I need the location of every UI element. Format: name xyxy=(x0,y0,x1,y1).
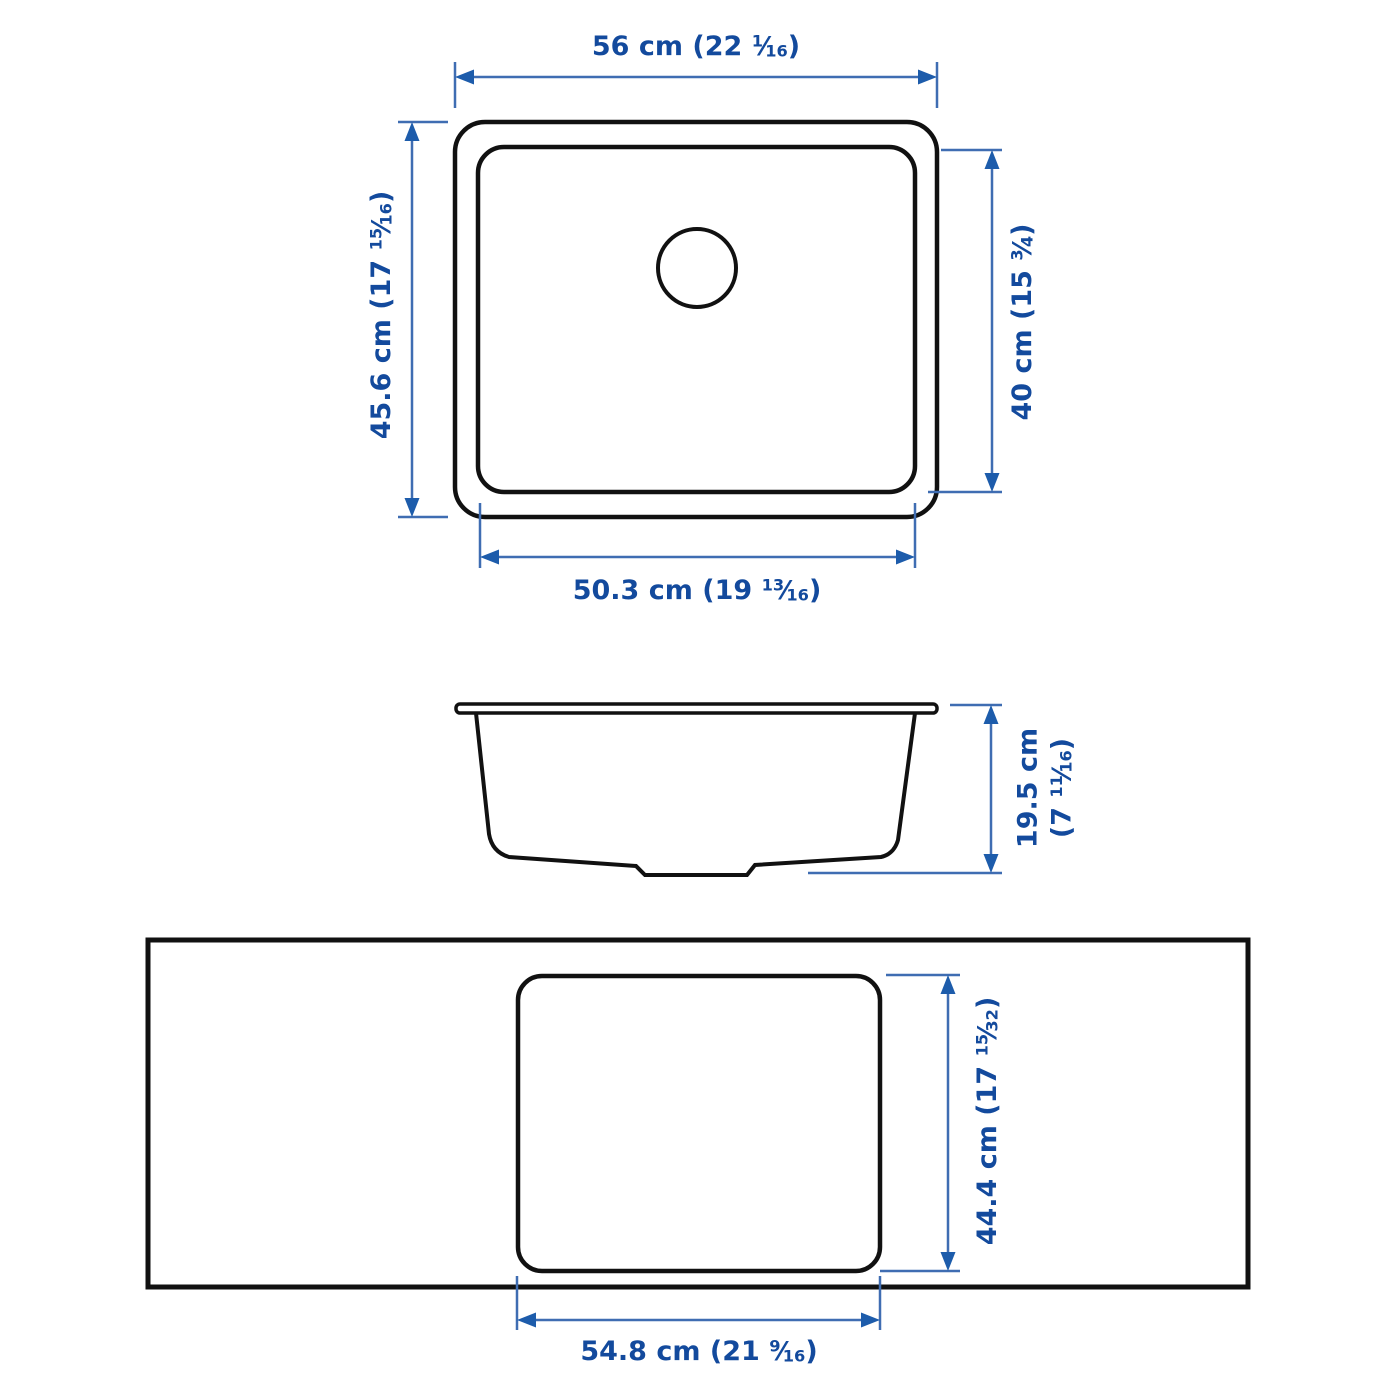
diagram-drawing xyxy=(0,0,1400,1400)
arrowhead-up xyxy=(985,150,1000,169)
drain-hole xyxy=(658,229,736,307)
fraction: 15⁄16 xyxy=(366,203,397,250)
fraction: 11⁄16 xyxy=(1046,750,1077,797)
arrowhead-right xyxy=(896,550,915,565)
sink-bowl-edge xyxy=(478,147,915,492)
fraction: 1⁄16 xyxy=(752,31,788,62)
dim-plan-outer-height xyxy=(398,122,448,517)
dim-label-plan-outer-height: 45.6 cm (17 15⁄16) xyxy=(365,191,399,440)
fraction: 3⁄4 xyxy=(1007,236,1038,261)
arrowhead-up xyxy=(405,122,420,141)
arrowhead-right xyxy=(861,1313,880,1328)
plan-view xyxy=(398,62,1002,568)
arrowhead-right xyxy=(918,70,937,85)
fraction: 15⁄32 xyxy=(972,1009,1003,1056)
arrowhead-left xyxy=(455,70,474,85)
fraction: 9⁄16 xyxy=(769,1336,805,1367)
dim-plan-outer-width xyxy=(455,62,937,108)
cutout-edge xyxy=(518,976,880,1271)
dim-label-cutout-height: 44.4 cm (17 15⁄32) xyxy=(971,997,1005,1246)
dim-label-side-height: 19.5 cm (7 11⁄16) xyxy=(1011,728,1079,848)
dim-plan-inner-width xyxy=(480,503,915,568)
dim-label-plan-outer-width: 56 cm (22 1⁄16) xyxy=(592,30,800,64)
arrowhead-left xyxy=(480,550,499,565)
sink-dimension-diagram: 56 cm (22 1⁄16) 45.6 cm (17 15⁄16) 40 cm… xyxy=(0,0,1400,1400)
sink-rim-profile xyxy=(456,704,937,713)
dim-label-plan-inner-width: 50.3 cm (19 13⁄16) xyxy=(573,574,822,608)
side-height-inches: (7 11⁄16) xyxy=(1045,728,1079,848)
arrowhead-down xyxy=(984,854,999,873)
sink-bowl-profile xyxy=(476,713,915,875)
countertop-view xyxy=(148,940,1248,1330)
dim-label-plan-inner-height: 40 cm (15 3⁄4) xyxy=(1006,224,1040,421)
sink-outer-edge xyxy=(455,122,937,517)
arrowhead-left xyxy=(517,1313,536,1328)
side-height-cm: 19.5 cm xyxy=(1011,728,1045,848)
side-view xyxy=(456,704,1002,875)
arrowhead-down xyxy=(985,473,1000,492)
arrowhead-up xyxy=(984,705,999,724)
fraction: 13⁄16 xyxy=(762,575,809,606)
arrowhead-down xyxy=(405,498,420,517)
dim-label-cutout-width: 54.8 cm (21 9⁄16) xyxy=(580,1335,817,1369)
